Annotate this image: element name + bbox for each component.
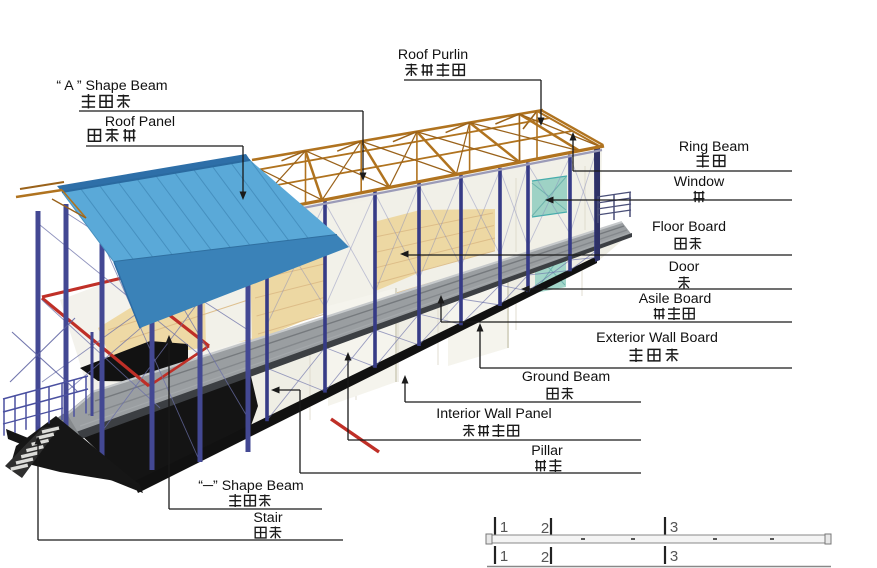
svg-text:1: 1 xyxy=(500,548,508,565)
svg-text:Stair: Stair xyxy=(253,510,282,526)
svg-text:Asile Board: Asile Board xyxy=(639,291,712,307)
svg-text:Interior Wall Panel: Interior Wall Panel xyxy=(436,406,551,422)
svg-text:“─” Shape Beam: “─” Shape Beam xyxy=(198,478,303,494)
svg-text:Ground Beam: Ground Beam xyxy=(522,369,610,385)
svg-text:2: 2 xyxy=(541,520,549,537)
svg-text:Pillar: Pillar xyxy=(531,443,563,459)
svg-text:3: 3 xyxy=(670,548,678,565)
svg-text:Door: Door xyxy=(669,259,700,275)
svg-text:2: 2 xyxy=(541,549,549,566)
svg-text:Roof Panel: Roof Panel xyxy=(105,114,175,130)
svg-text:3: 3 xyxy=(670,519,678,536)
svg-text:Floor Board: Floor Board xyxy=(652,219,726,235)
svg-text:1: 1 xyxy=(500,519,508,536)
svg-text:Ring Beam: Ring Beam xyxy=(679,139,749,155)
svg-text:Window: Window xyxy=(674,174,725,190)
svg-text:Exterior Wall Board: Exterior Wall Board xyxy=(596,330,718,346)
svg-text:“ A ” Shape Beam: “ A ” Shape Beam xyxy=(56,78,167,94)
svg-text:Roof Purlin: Roof Purlin xyxy=(398,47,468,63)
